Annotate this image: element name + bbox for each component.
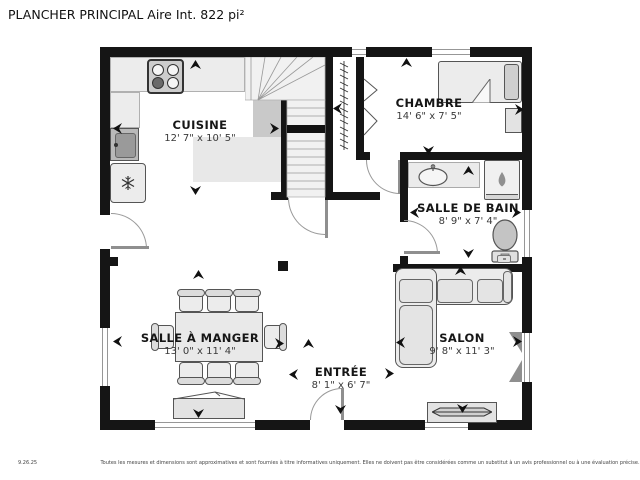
sofa-cushion	[477, 279, 503, 303]
room-name: ENTRÉE	[312, 365, 371, 379]
wall-bath-left-upper	[400, 160, 408, 222]
chaise-cushion	[399, 305, 433, 365]
measure-arrow-up-icon	[303, 339, 314, 348]
room-name: SALLE À MANGER	[141, 331, 259, 345]
sofa-armrest	[503, 271, 512, 303]
window-bathroom	[522, 210, 532, 257]
dining-chair	[264, 325, 284, 349]
window-top-small	[352, 47, 366, 57]
side-door-opening	[100, 215, 110, 249]
window-dining	[155, 420, 255, 430]
burner-icon	[152, 64, 164, 76]
burner-icon	[167, 64, 179, 76]
room-name: SALON	[429, 331, 494, 345]
shower-door	[486, 194, 518, 199]
window-salon-right	[522, 333, 532, 382]
dining-chair	[179, 362, 203, 382]
dining-chair	[207, 292, 231, 312]
measure-arrow-up-icon	[193, 270, 204, 279]
room-dims: 14' 6" x 7' 5"	[396, 111, 463, 122]
curtain-icon	[509, 360, 522, 382]
front-entry-door-leaf	[341, 388, 344, 420]
dining-chair	[235, 362, 259, 382]
room-dims: 13' 0" x 11' 4"	[141, 346, 259, 357]
room-label-salle-a-manger: SALLE À MANGER 13' 0" x 11' 4"	[141, 331, 259, 357]
room-dims: 8' 1" x 6' 7"	[312, 380, 371, 391]
room-dims: 8' 9" x 7' 4"	[417, 216, 519, 227]
measure-arrow-up-icon	[401, 58, 412, 67]
room-dims: 9' 8" x 11' 3"	[429, 346, 494, 357]
wall-control-dot	[503, 258, 506, 260]
stove	[147, 59, 184, 94]
sofa-cushion	[437, 279, 473, 303]
wall-left-stub	[110, 257, 118, 266]
droplet-icon	[494, 170, 510, 190]
side-entry-door-leaf	[111, 246, 149, 249]
column	[278, 261, 288, 271]
bifold-door-icon	[364, 79, 377, 101]
bedroom-door-leaf	[398, 160, 400, 194]
footer-date: 9.26.25	[18, 460, 37, 466]
burner-icon	[167, 77, 179, 89]
room-name: SALLE DE BAIN	[417, 201, 519, 215]
window-left	[100, 328, 110, 386]
room-label-chambre: CHAMBRE 14' 6" x 7' 5"	[396, 96, 463, 122]
footer-disclaimer: Toutes les mesures et dimensions sont ap…	[100, 460, 639, 466]
faucet-icon	[114, 143, 118, 147]
room-label-salle-de-bain: SALLE DE BAIN 8' 9" x 7' 4"	[417, 201, 519, 227]
dining-chair	[207, 362, 231, 382]
stair-door-leaf	[325, 200, 328, 238]
burner-icon	[152, 77, 164, 89]
kitchen-sink	[110, 128, 139, 161]
measure-arrow-right-icon	[385, 368, 394, 379]
staircase-drawing	[245, 57, 378, 200]
room-label-entree: ENTRÉE 8' 1" x 6' 7"	[312, 365, 371, 391]
room-label-cuisine: CUISINE 12' 7" x 10' 5"	[164, 118, 236, 144]
room-name: CHAMBRE	[396, 96, 463, 110]
stair-door-arc	[288, 198, 325, 235]
buffet-lid-icon	[173, 390, 245, 400]
side-entry-door-arc	[111, 213, 147, 249]
wall-chambre-bottom-right	[400, 152, 522, 160]
blanket-fold-icon	[472, 79, 492, 103]
floorplan-page: PLANCHER PRINCIPAL Aire Int. 822 pi²	[0, 0, 640, 480]
measure-arrow-down-icon	[463, 249, 474, 258]
staircase	[245, 57, 378, 200]
buffet	[173, 398, 245, 419]
room-label-salon: SALON 9' 8" x 11' 3"	[429, 331, 494, 357]
closet-rod-icon	[340, 61, 348, 150]
pillow	[504, 64, 519, 100]
bifold-door-icon	[364, 108, 377, 135]
sofa-cushion	[399, 279, 433, 303]
sink-basin	[115, 133, 136, 158]
bathroom-sink-icon	[414, 164, 452, 187]
entry-door-opening	[310, 420, 344, 430]
measure-arrow-left-icon	[113, 336, 122, 347]
dining-chair	[179, 292, 203, 312]
fridge	[110, 163, 146, 203]
room-dims: 12' 7" x 10' 5"	[164, 133, 236, 144]
bathroom-door-leaf	[404, 251, 440, 254]
dining-chair	[235, 292, 259, 312]
window-bedroom	[432, 47, 470, 57]
kitchen-counter-left	[110, 92, 140, 128]
measure-arrow-left-icon	[289, 369, 298, 380]
snowflake-icon	[120, 175, 136, 191]
wall-control	[497, 255, 511, 263]
room-name: CUISINE	[164, 118, 236, 132]
plan-title: PLANCHER PRINCIPAL Aire Int. 822 pi²	[8, 7, 245, 22]
shower	[484, 160, 520, 200]
measure-arrow-down-icon	[190, 186, 201, 195]
front-entry-door-arc	[310, 388, 342, 420]
